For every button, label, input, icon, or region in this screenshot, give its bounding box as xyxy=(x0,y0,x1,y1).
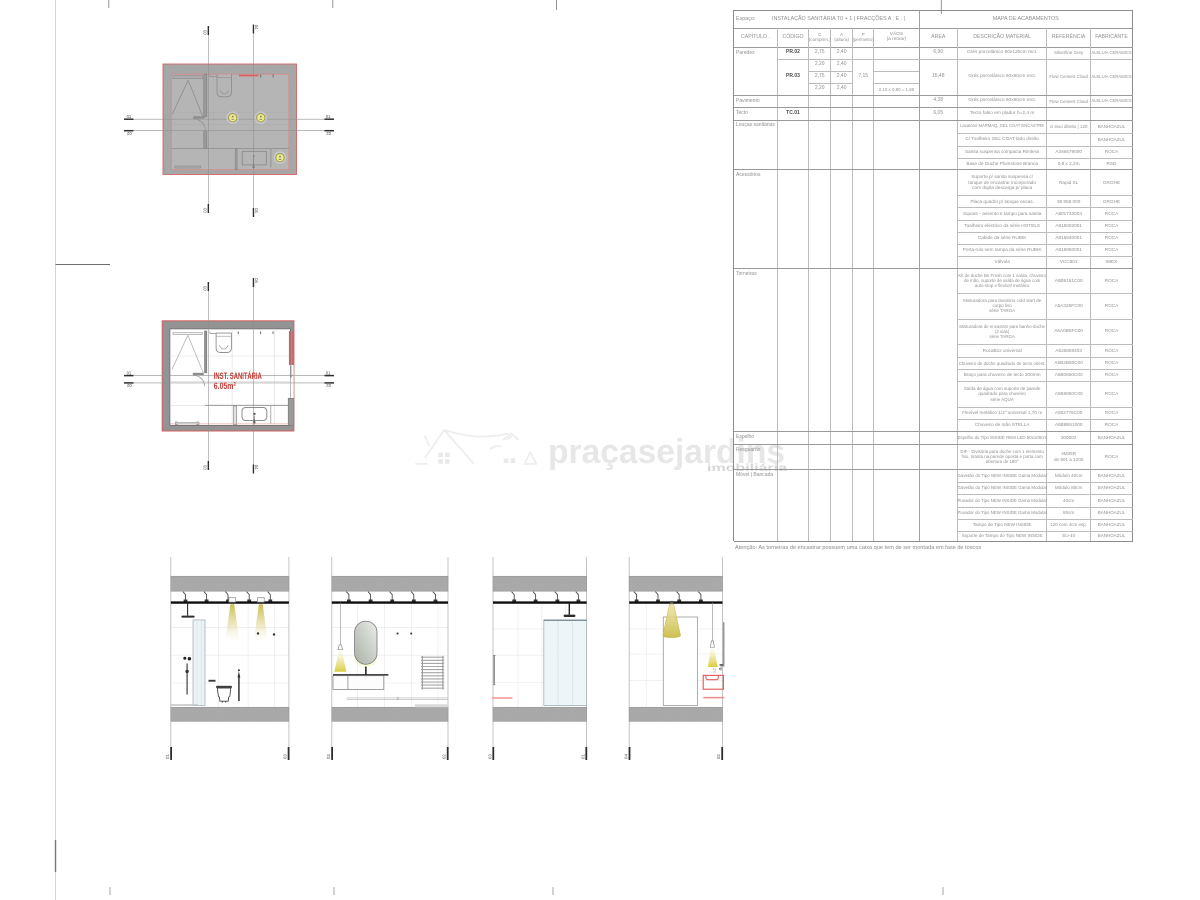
svg-text:04: 04 xyxy=(254,465,259,470)
svg-text:02: 02 xyxy=(326,131,331,136)
svg-text:02: 02 xyxy=(442,754,447,759)
svg-text:02: 02 xyxy=(126,131,131,136)
svg-text:0,2: 0,2 xyxy=(713,668,717,673)
svg-text:04: 04 xyxy=(624,754,629,759)
svg-text:01: 01 xyxy=(580,754,585,759)
svg-text:03: 03 xyxy=(283,754,288,759)
svg-text:03: 03 xyxy=(326,754,331,759)
svg-text:03: 03 xyxy=(203,464,208,469)
svg-text:02: 02 xyxy=(126,383,131,388)
svg-text:03: 03 xyxy=(487,754,492,759)
svg-text:01: 01 xyxy=(165,754,170,759)
svg-text:03: 03 xyxy=(203,207,208,212)
svg-text:02: 02 xyxy=(716,754,721,759)
svg-text:04: 04 xyxy=(254,278,259,283)
svg-text:6.05m²: 6.05m² xyxy=(214,380,236,391)
svg-text:02: 02 xyxy=(326,383,331,388)
svg-text:01: 01 xyxy=(127,114,132,119)
svg-text:04: 04 xyxy=(254,208,259,213)
svg-text:03: 03 xyxy=(203,29,208,34)
svg-text:03: 03 xyxy=(203,285,208,290)
svg-text:01: 01 xyxy=(326,114,331,119)
svg-text:04: 04 xyxy=(254,25,259,30)
svg-text:01: 01 xyxy=(127,370,132,375)
svg-text:01: 01 xyxy=(326,370,331,375)
